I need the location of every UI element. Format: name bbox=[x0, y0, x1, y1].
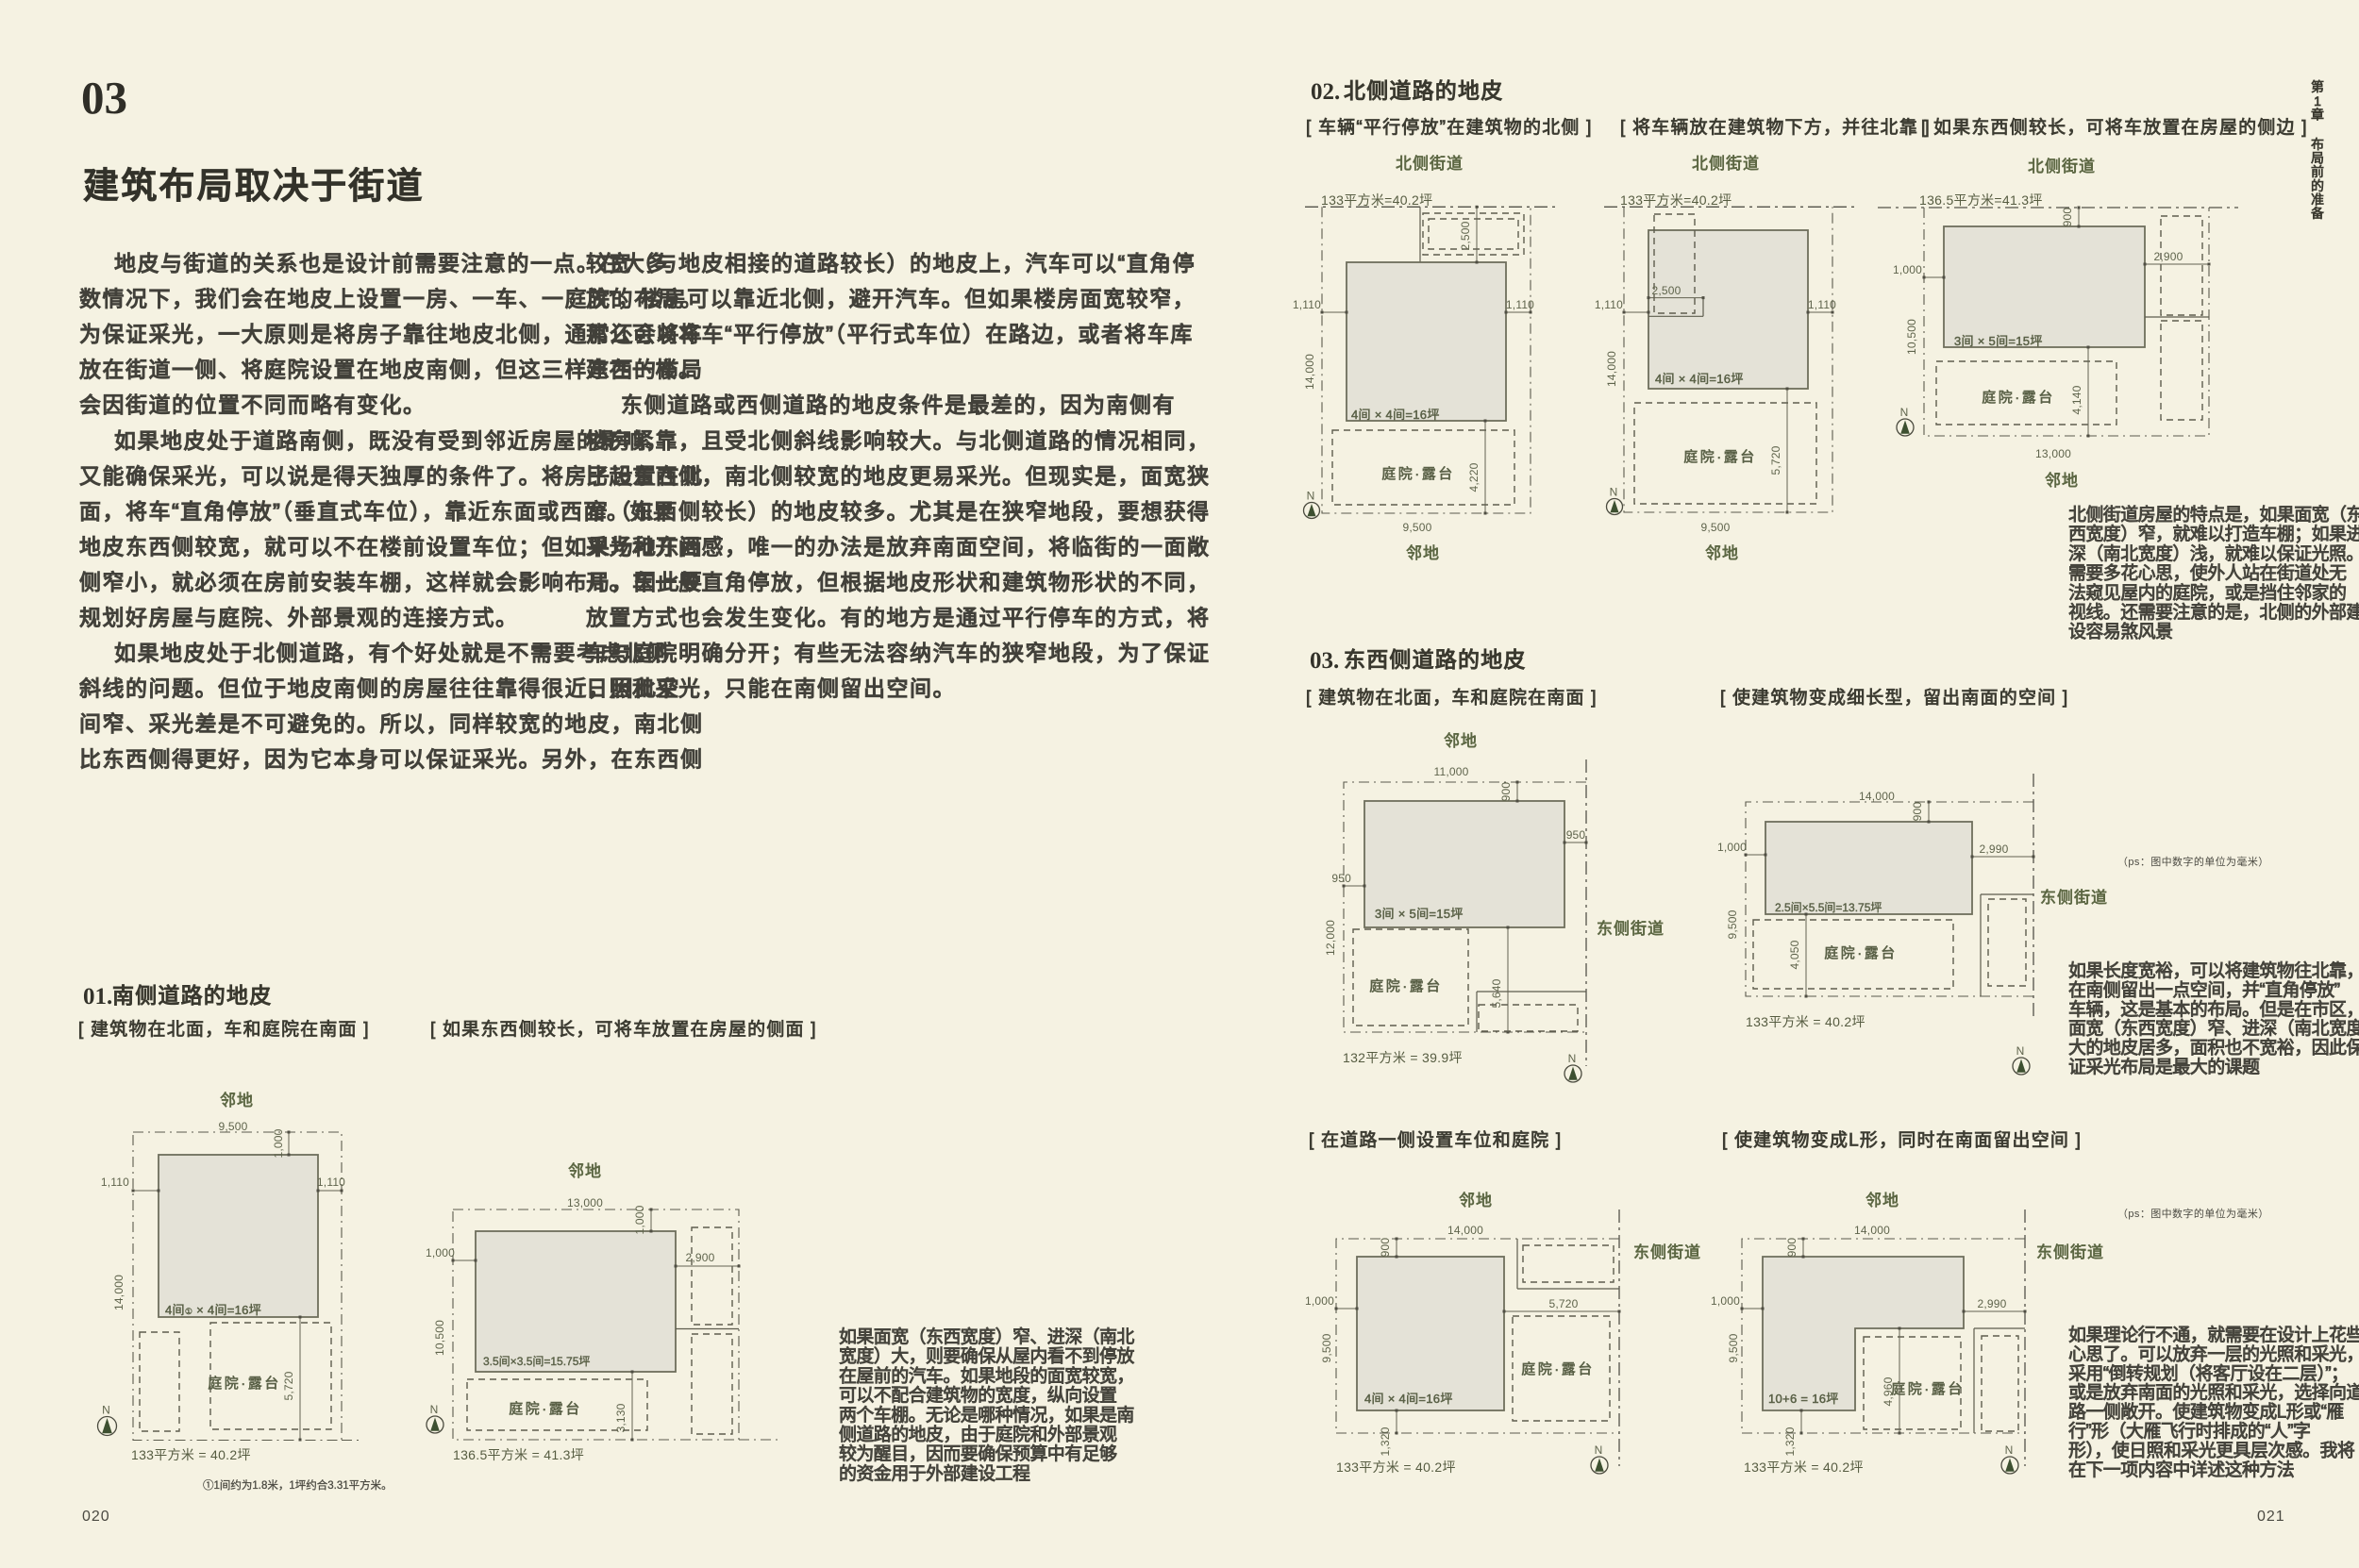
svg-text:邻地: 邻地 bbox=[1459, 1192, 1493, 1209]
svg-text:3间 × 5间=15坪: 3间 × 5间=15坪 bbox=[1375, 907, 1464, 921]
svg-text:5,720: 5,720 bbox=[282, 1371, 295, 1400]
svg-text:备: 备 bbox=[2311, 206, 2324, 221]
svg-text:章: 章 bbox=[2311, 108, 2324, 123]
svg-text:1,000: 1,000 bbox=[1717, 841, 1747, 854]
svg-text:较宽（与地皮相接的道路较长）的地皮上，汽车可以“直角停: 较宽（与地皮相接的道路较长）的地皮上，汽车可以“直角停 bbox=[586, 251, 1196, 275]
svg-text:5,720: 5,720 bbox=[1548, 1297, 1578, 1310]
svg-text:4间 × 4间=16坪: 4间 × 4间=16坪 bbox=[1351, 408, 1440, 422]
svg-text:证采光布局是最大的课题: 证采光布局是最大的课题 bbox=[2068, 1057, 2260, 1077]
svg-text:邻地: 邻地 bbox=[1705, 544, 1739, 562]
svg-text:[ 建筑物在北面，车和庭院在南面 ]: [ 建筑物在北面，车和庭院在南面 ] bbox=[1306, 688, 1598, 709]
svg-text:或是放弃南面的光照和采光，选择向道: 或是放弃南面的光照和采光，选择向道 bbox=[2068, 1382, 2359, 1403]
svg-text:133平方米=40.2坪: 133平方米=40.2坪 bbox=[1620, 192, 1732, 208]
svg-text:庭院·露台: 庭院·露台 bbox=[1891, 1380, 1965, 1397]
svg-text:东侧街道: 东侧街道 bbox=[2040, 889, 2108, 907]
svg-text:庭院·露台: 庭院·露台 bbox=[1521, 1360, 1595, 1377]
svg-text:邻地: 邻地 bbox=[2045, 472, 2079, 490]
svg-text:邻地: 邻地 bbox=[1444, 732, 1478, 750]
svg-text:11,000: 11,000 bbox=[1433, 765, 1468, 778]
svg-text:900: 900 bbox=[1911, 802, 1924, 822]
svg-text:13,000: 13,000 bbox=[2035, 447, 2071, 460]
svg-text:3,130: 3,130 bbox=[614, 1403, 627, 1432]
svg-text:日照和采光，只能在南侧留出空间。: 日照和采光，只能在南侧留出空间。 bbox=[586, 676, 956, 701]
svg-text:可以不配合建筑物的宽度，纵向设置: 可以不配合建筑物的宽度，纵向设置 bbox=[839, 1385, 1116, 1406]
svg-text:10+6 = 16坪: 10+6 = 16坪 bbox=[1768, 1392, 1839, 1406]
svg-text:庭院·露台: 庭院·露台 bbox=[208, 1375, 281, 1392]
svg-text:9,500: 9,500 bbox=[218, 1120, 247, 1133]
svg-text:01.: 01. bbox=[83, 984, 112, 1009]
svg-text:N: N bbox=[1307, 490, 1315, 503]
svg-text:（ps：图中数字的单位为毫米）: （ps：图中数字的单位为毫米） bbox=[2117, 1207, 2269, 1220]
svg-text:133平方米=40.2坪: 133平方米=40.2坪 bbox=[1321, 192, 1432, 208]
svg-text:2,500: 2,500 bbox=[1459, 221, 1472, 250]
svg-text:[ 使建筑物变成细长型，留出南面的空间 ]: [ 使建筑物变成细长型，留出南面的空间 ] bbox=[1720, 688, 2068, 709]
svg-text:会因街道的位置不同而略有变化。: 会因街道的位置不同而略有变化。 bbox=[79, 392, 427, 417]
svg-text:900: 900 bbox=[2061, 208, 2074, 227]
svg-text:N: N bbox=[430, 1403, 439, 1416]
svg-text:邻地: 邻地 bbox=[568, 1162, 602, 1180]
svg-text:前: 前 bbox=[2311, 164, 2324, 179]
svg-text:1,320: 1,320 bbox=[1379, 1426, 1392, 1456]
svg-text:N: N bbox=[2005, 1443, 2014, 1457]
svg-text:视线。还需要注意的是，北侧的外部建: 视线。还需要注意的是，北侧的外部建 bbox=[2068, 602, 2359, 623]
svg-text:车辆，这是基本的布局。但是在市区，: 车辆，这是基本的布局。但是在市区， bbox=[2068, 999, 2359, 1020]
svg-text:如果长度宽裕，可以将建筑物往北靠，: 如果长度宽裕，可以将建筑物往北靠， bbox=[2068, 960, 2359, 981]
svg-text:间窄、采光差是不可避免的。所以，同样较宽的地皮，南北侧: 间窄、采光差是不可避免的。所以，同样较宽的地皮，南北侧 bbox=[79, 711, 704, 736]
svg-text:那么可以将车“平行停放”（平行式车位）在路边，或者将车库: 那么可以将车“平行停放”（平行式车位）在路边，或者将车库 bbox=[586, 322, 1194, 346]
svg-text:局: 局 bbox=[2311, 151, 2324, 166]
svg-text:9,500: 9,500 bbox=[1726, 909, 1739, 939]
svg-text:14,000: 14,000 bbox=[1859, 790, 1895, 803]
svg-text:4间① × 4间=16坪: 4间① × 4间=16坪 bbox=[165, 1303, 261, 1317]
svg-text:1,000: 1,000 bbox=[272, 1128, 285, 1158]
svg-text:03.: 03. bbox=[1310, 648, 1339, 674]
svg-text:950: 950 bbox=[1566, 828, 1586, 842]
svg-text:第: 第 bbox=[2311, 79, 2324, 94]
svg-text:行”形（大雁飞行时排成的“人”字: 行”形（大雁飞行时排成的“人”字 bbox=[2068, 1421, 2310, 1442]
svg-text:在屋前的汽车。如果地段的面宽较宽，: 在屋前的汽车。如果地段的面宽较宽， bbox=[839, 1365, 1134, 1386]
svg-text:[ 如果东西侧较长，可将车放置在房屋的侧面 ]: [ 如果东西侧较长，可将车放置在房屋的侧面 ] bbox=[430, 1019, 817, 1040]
svg-text:1,000: 1,000 bbox=[1305, 1294, 1334, 1308]
svg-text:133平方米 = 40.2坪: 133平方米 = 40.2坪 bbox=[1744, 1460, 1864, 1475]
svg-text:采用“倒转规划（将客厅设在二层）”；: 采用“倒转规划（将客厅设在二层）”； bbox=[2068, 1363, 2348, 1384]
svg-text:4间 × 4间=16坪: 4间 × 4间=16坪 bbox=[1655, 372, 1744, 386]
svg-text:13,000: 13,000 bbox=[567, 1196, 603, 1209]
svg-text:4,140: 4,140 bbox=[2070, 385, 2083, 414]
svg-text:邻地: 邻地 bbox=[1865, 1192, 1899, 1209]
svg-text:在南侧留出一点空间，并“直角停放”: 在南侧留出一点空间，并“直角停放” bbox=[2068, 979, 2340, 1000]
svg-text:1,110: 1,110 bbox=[1595, 298, 1623, 311]
svg-text:的: 的 bbox=[2311, 178, 2324, 193]
svg-text:庭院·露台: 庭院·露台 bbox=[1982, 389, 2055, 406]
svg-text:路一侧敞开。使建筑物变成L形或“雁: 路一侧敞开。使建筑物变成L形或“雁 bbox=[2068, 1402, 2344, 1423]
svg-text:2,900: 2,900 bbox=[685, 1251, 714, 1264]
svg-text:020: 020 bbox=[82, 1509, 110, 1525]
svg-text:需要多花心思，使外人站在街道处无: 需要多花心思，使外人站在街道处无 bbox=[2068, 563, 2347, 584]
svg-text:[ 建筑物在北面，车和庭院在南面 ]: [ 建筑物在北面，车和庭院在南面 ] bbox=[78, 1019, 370, 1040]
svg-text:在下一项内容中详述这种方法: 在下一项内容中详述这种方法 bbox=[2068, 1460, 2294, 1480]
svg-text:[ 如果东西侧较长，可将车放置在房屋的侧边 ]: [ 如果东西侧较长，可将车放置在房屋的侧边 ] bbox=[1921, 117, 2308, 138]
svg-text:1,000: 1,000 bbox=[426, 1246, 455, 1259]
svg-text:深（南北宽度）浅，就难以保证光照。: 深（南北宽度）浅，就难以保证光照。 bbox=[2068, 543, 2359, 564]
svg-text:10,500: 10,500 bbox=[1905, 319, 1918, 355]
svg-text:1,110: 1,110 bbox=[1506, 298, 1534, 311]
svg-text:9,500: 9,500 bbox=[1700, 521, 1730, 534]
svg-text:北侧道路的地皮: 北侧道路的地皮 bbox=[1344, 78, 1503, 103]
svg-text:3间 × 5间=15坪: 3间 × 5间=15坪 bbox=[1954, 334, 2043, 348]
svg-text:建筑布局取决于街道: 建筑布局取决于街道 bbox=[83, 167, 425, 207]
svg-text:9,500: 9,500 bbox=[1320, 1333, 1333, 1362]
svg-text:14,000: 14,000 bbox=[1447, 1224, 1483, 1237]
svg-text:900: 900 bbox=[1785, 1238, 1799, 1258]
svg-text:[ 使建筑物变成L形，同时在南面留出空间 ]: [ 使建筑物变成L形，同时在南面留出空间 ] bbox=[1722, 1130, 2082, 1151]
svg-text:楼房紧靠，且受北侧斜线影响较大。与北侧道路的情况相同，: 楼房紧靠，且受北侧斜线影响较大。与北侧道路的情况相同， bbox=[586, 428, 1211, 453]
svg-text:[ 在道路一侧设置车位和庭院 ]: [ 在道路一侧设置车位和庭院 ] bbox=[1309, 1130, 1562, 1151]
svg-text:1,110: 1,110 bbox=[1808, 298, 1836, 311]
svg-text:10,500: 10,500 bbox=[433, 1320, 446, 1356]
svg-text:邻地: 邻地 bbox=[220, 1092, 254, 1109]
svg-text:宽度）大，则要确保从屋内看不到停放: 宽度）大，则要确保从屋内看不到停放 bbox=[839, 1346, 1134, 1367]
svg-text:1,110: 1,110 bbox=[1293, 298, 1321, 311]
svg-text:准: 准 bbox=[2311, 192, 2324, 207]
svg-text:4,220: 4,220 bbox=[1467, 462, 1481, 492]
svg-text:1: 1 bbox=[2314, 93, 2321, 108]
svg-text:北侧街道: 北侧街道 bbox=[1692, 155, 1760, 173]
svg-text:3.5间×3.5间=15.75坪: 3.5间×3.5间=15.75坪 bbox=[483, 1355, 590, 1368]
svg-text:021: 021 bbox=[2257, 1509, 2285, 1525]
svg-text:东侧街道: 东侧街道 bbox=[2036, 1243, 2104, 1261]
svg-text:侧道路的地皮，由于庭院和外部景观: 侧道路的地皮，由于庭院和外部景观 bbox=[839, 1425, 1117, 1445]
svg-text:9,500: 9,500 bbox=[1727, 1333, 1740, 1362]
svg-text:N: N bbox=[1900, 406, 1909, 419]
svg-text:东侧街道: 东侧街道 bbox=[1633, 1243, 1701, 1261]
svg-text:12,000: 12,000 bbox=[1324, 920, 1337, 956]
svg-text:950: 950 bbox=[1331, 872, 1351, 885]
svg-text:4,960: 4,960 bbox=[1882, 1376, 1895, 1406]
svg-text:窄（东西侧较长）的地皮较多。尤其是在狭窄地段，要想获得: 窄（东西侧较长）的地皮较多。尤其是在狭窄地段，要想获得 bbox=[586, 499, 1211, 524]
svg-text:2.5间×5.5间=13.75坪: 2.5间×5.5间=13.75坪 bbox=[1775, 901, 1882, 914]
svg-text:布: 布 bbox=[2311, 137, 2324, 152]
svg-text:4,050: 4,050 bbox=[1788, 940, 1801, 969]
svg-text:900: 900 bbox=[1379, 1238, 1392, 1258]
svg-text:136.5平方米=41.3坪: 136.5平方米=41.3坪 bbox=[1919, 192, 2043, 208]
svg-text:采光和开阔感，唯一的办法是放弃南面空间，将临街的一面敞: 采光和开阔感，唯一的办法是放弃南面空间，将临街的一面敞 bbox=[586, 534, 1211, 559]
svg-text:14,000: 14,000 bbox=[112, 1275, 125, 1310]
svg-text:东侧街道: 东侧街道 bbox=[1597, 920, 1665, 938]
svg-text:132平方米 = 39.9坪: 132平方米 = 39.9坪 bbox=[1343, 1050, 1463, 1065]
svg-text:西宽度）窄，就难以打造车棚；如果进: 西宽度）窄，就难以打造车棚；如果进 bbox=[2068, 524, 2359, 544]
svg-text:法窥见屋内的庭院，或是挡住邻家的: 法窥见屋内的庭院，或是挡住邻家的 bbox=[2068, 582, 2346, 603]
svg-text:北侧街道房屋的特点是，如果面宽（东: 北侧街道房屋的特点是，如果面宽（东 bbox=[2068, 505, 2359, 525]
svg-text:5,720: 5,720 bbox=[1769, 445, 1782, 475]
svg-text:较为醒目，因而要确保预算中有足够: 较为醒目，因而要确保预算中有足够 bbox=[839, 1443, 1117, 1464]
svg-text:庭院·露台: 庭院·露台 bbox=[1369, 977, 1443, 994]
svg-text:如果理论行不通，就需要在设计上花些: 如果理论行不通，就需要在设计上花些 bbox=[2068, 1325, 2359, 1345]
svg-text:邻地: 邻地 bbox=[1406, 544, 1440, 562]
svg-text:02.: 02. bbox=[1311, 79, 1340, 105]
svg-text:2,900: 2,900 bbox=[2153, 250, 2183, 263]
svg-text:庭院·露台: 庭院·露台 bbox=[1381, 465, 1455, 482]
svg-text:开。车一般直角停放，但根据地皮形状和建筑物形状的不同，: 开。车一般直角停放，但根据地皮形状和建筑物形状的不同， bbox=[586, 570, 1211, 594]
svg-text:设容易煞风景: 设容易煞风景 bbox=[2068, 622, 2172, 642]
svg-text:2,990: 2,990 bbox=[1977, 1297, 2006, 1310]
svg-text:1,320: 1,320 bbox=[1783, 1426, 1797, 1456]
svg-text:N: N bbox=[1610, 486, 1618, 499]
svg-text:2,990: 2,990 bbox=[1979, 842, 2008, 856]
svg-text:1,000: 1,000 bbox=[633, 1205, 646, 1234]
svg-text:如果面宽（东西宽度）窄、进深（南北: 如果面宽（东西宽度）窄、进深（南北 bbox=[839, 1326, 1134, 1347]
svg-text:面宽（东西宽度）窄、进深（南北宽度）: 面宽（东西宽度）窄、进深（南北宽度） bbox=[2068, 1018, 2359, 1039]
svg-text:形），使日照和采光更具层次感。我将: 形），使日照和采光更具层次感。我将 bbox=[2068, 1440, 2355, 1460]
svg-text:车与庭院明确分开；有些无法容纳汽车的狭窄地段，为了保证: 车与庭院明确分开；有些无法容纳汽车的狭窄地段，为了保证 bbox=[586, 641, 1211, 665]
svg-text:北侧街道: 北侧街道 bbox=[2028, 158, 2096, 175]
svg-text:9,500: 9,500 bbox=[1402, 521, 1431, 534]
svg-text:比东西侧得更好，因为它本身可以保证采光。另外，在东西侧: 比东西侧得更好，因为它本身可以保证采光。另外，在东西侧 bbox=[79, 747, 704, 772]
svg-text:东西侧道路的地皮: 东西侧道路的地皮 bbox=[1344, 647, 1527, 672]
svg-text:[ 车辆“平行停放”在建筑物的北侧 ]: [ 车辆“平行停放”在建筑物的北侧 ] bbox=[1306, 117, 1593, 138]
svg-text:14,000: 14,000 bbox=[1854, 1224, 1890, 1237]
svg-text:14,000: 14,000 bbox=[1303, 354, 1316, 390]
svg-text:14,000: 14,000 bbox=[1605, 351, 1618, 387]
svg-text:1,110: 1,110 bbox=[317, 1176, 345, 1189]
svg-text:[ 将车辆放在建筑物下方，并往北靠 ]: [ 将车辆放在建筑物下方，并往北靠 ] bbox=[1620, 117, 1931, 138]
svg-text:①1间约为1.8米，1坪约合3.31平方米。: ①1间约为1.8米，1坪约合3.31平方米。 bbox=[203, 1478, 393, 1492]
svg-text:的资金用于外部建设工程: 的资金用于外部建设工程 bbox=[839, 1463, 1030, 1484]
svg-text:900: 900 bbox=[1499, 782, 1513, 802]
svg-text:南侧道路的地皮: 南侧道路的地皮 bbox=[112, 983, 272, 1008]
svg-text:放”，楼房可以靠近北侧，避开汽车。但如果楼房面宽较窄，: 放”，楼房可以靠近北侧，避开汽车。但如果楼房面宽较窄， bbox=[586, 287, 1196, 311]
svg-text:133平方米 = 40.2坪: 133平方米 = 40.2坪 bbox=[1746, 1014, 1865, 1029]
svg-text:133平方米 = 40.2坪: 133平方米 = 40.2坪 bbox=[131, 1447, 251, 1462]
svg-text:1,000: 1,000 bbox=[1711, 1294, 1740, 1308]
svg-text:03: 03 bbox=[81, 72, 127, 124]
svg-text:放置方式也会发生变化。有的地方是通过平行停车的方式，将: 放置方式也会发生变化。有的地方是通过平行停车的方式，将 bbox=[586, 606, 1211, 630]
svg-text:大的地皮居多，面积也不宽裕，因此保: 大的地皮居多，面积也不宽裕，因此保 bbox=[2068, 1038, 2359, 1059]
svg-text:N: N bbox=[102, 1404, 110, 1417]
svg-text:4间 × 4间=16坪: 4间 × 4间=16坪 bbox=[1364, 1392, 1453, 1406]
svg-text:5,640: 5,640 bbox=[1490, 978, 1503, 1008]
svg-text:规划好房屋与庭院、外部景观的连接方式。: 规划好房屋与庭院、外部景观的连接方式。 bbox=[79, 606, 519, 630]
svg-text:N: N bbox=[2016, 1044, 2025, 1058]
svg-text:1,000: 1,000 bbox=[1893, 263, 1922, 276]
svg-text:比起东西侧，南北侧较宽的地皮更易采光。但现实是，面宽狭: 比起东西侧，南北侧较宽的地皮更易采光。但现实是，面宽狭 bbox=[586, 463, 1211, 488]
svg-text:东侧道路或西侧道路的地皮条件是最差的，因为南侧有: 东侧道路或西侧道路的地皮条件是最差的，因为南侧有 bbox=[621, 392, 1176, 417]
svg-text:133平方米 = 40.2坪: 133平方米 = 40.2坪 bbox=[1336, 1460, 1456, 1475]
svg-text:北侧街道: 北侧街道 bbox=[1396, 155, 1464, 173]
svg-text:136.5平方米 = 41.3坪: 136.5平方米 = 41.3坪 bbox=[453, 1447, 584, 1462]
svg-text:1,110: 1,110 bbox=[101, 1176, 129, 1189]
svg-text:N: N bbox=[1568, 1052, 1577, 1065]
svg-text:庭院·露台: 庭院·露台 bbox=[1824, 944, 1898, 961]
svg-text:两个车棚。无论是哪种情况，如果是南: 两个车棚。无论是哪种情况，如果是南 bbox=[839, 1405, 1134, 1426]
svg-text:庭院·露台: 庭院·露台 bbox=[1683, 448, 1757, 465]
svg-text:建在一楼。: 建在一楼。 bbox=[586, 358, 702, 382]
svg-text:心思了。可以放弃一层的光照和采光，: 心思了。可以放弃一层的光照和采光， bbox=[2068, 1343, 2359, 1364]
svg-text:（ps：图中数字的单位为毫米）: （ps：图中数字的单位为毫米） bbox=[2117, 855, 2269, 868]
svg-text:2,500: 2,500 bbox=[1651, 284, 1681, 297]
svg-text:庭院·露台: 庭院·露台 bbox=[509, 1400, 582, 1417]
svg-text:N: N bbox=[1595, 1443, 1603, 1457]
